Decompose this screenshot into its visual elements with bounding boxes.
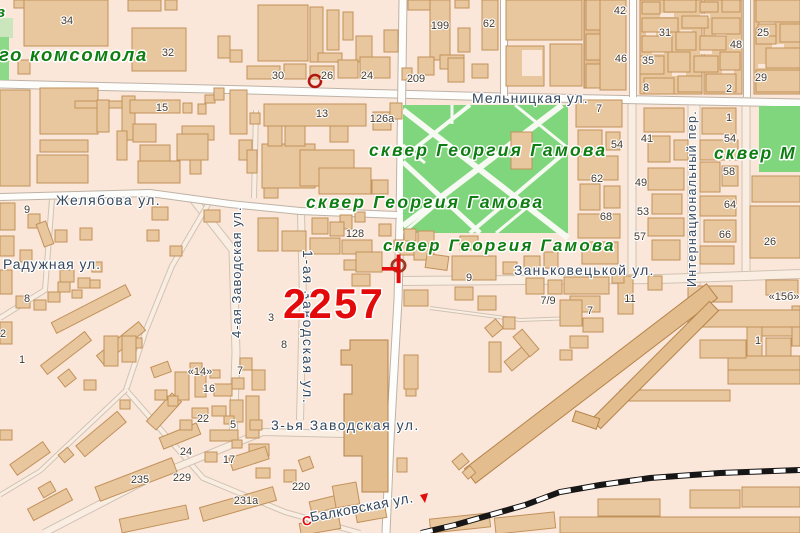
svg-text:8: 8 — [281, 339, 287, 351]
svg-text:1-ая Заводская ул.: 1-ая Заводская ул. — [300, 250, 316, 405]
svg-text:41: 41 — [641, 133, 653, 145]
svg-text:30: 30 — [272, 70, 284, 82]
svg-text:8: 8 — [643, 82, 649, 94]
svg-text:9: 9 — [466, 272, 472, 284]
svg-text:31: 31 — [659, 27, 671, 39]
svg-text:7: 7 — [587, 305, 593, 317]
svg-text:3: 3 — [268, 312, 274, 324]
svg-text:1: 1 — [755, 335, 761, 347]
svg-text:42: 42 — [614, 5, 626, 17]
svg-text:199: 199 — [431, 20, 449, 32]
svg-text:сквер Георгия Гамова: сквер Георгия Гамова — [306, 192, 544, 212]
svg-text:49: 49 — [635, 177, 647, 189]
svg-text:62: 62 — [591, 173, 603, 185]
svg-text:2: 2 — [726, 83, 732, 95]
svg-text:«15б»: «15б» — [769, 291, 800, 303]
svg-text:53: 53 — [637, 206, 649, 218]
svg-text:8: 8 — [24, 293, 30, 305]
svg-text:2: 2 — [0, 328, 6, 340]
svg-text:48: 48 — [730, 39, 742, 51]
svg-text:220: 220 — [292, 481, 310, 493]
svg-text:Желябова ул.: Желябова ул. — [56, 192, 161, 208]
svg-text:35: 35 — [642, 55, 654, 67]
svg-text:25: 25 — [757, 27, 769, 39]
svg-text:54: 54 — [611, 139, 623, 151]
svg-text:го комсомола: го комсомола — [0, 44, 148, 65]
svg-text:16: 16 — [203, 383, 215, 395]
svg-text:Интернациональный пер.: Интернациональный пер. — [685, 110, 699, 287]
svg-text:17: 17 — [223, 454, 235, 466]
svg-text:1: 1 — [726, 112, 732, 124]
svg-text:126а: 126а — [370, 113, 395, 125]
svg-text:7: 7 — [596, 103, 602, 115]
svg-text:64: 64 — [724, 199, 736, 211]
svg-text:66: 66 — [719, 229, 731, 241]
svg-text:сквер Георгия Гамова: сквер Георгия Гамова — [383, 236, 616, 255]
svg-text:209: 209 — [407, 73, 425, 85]
svg-text:13: 13 — [316, 108, 328, 120]
svg-text:128: 128 — [346, 228, 364, 240]
svg-text:Радужная ул.: Радужная ул. — [3, 256, 101, 272]
svg-text:58: 58 — [723, 166, 735, 178]
svg-text:231а: 231а — [234, 495, 259, 507]
svg-text:1: 1 — [19, 354, 25, 366]
svg-text:24: 24 — [180, 446, 192, 458]
svg-text:11: 11 — [624, 293, 635, 305]
svg-text:26: 26 — [764, 236, 776, 248]
svg-text:«14»: «14» — [188, 366, 212, 378]
svg-text:54: 54 — [724, 133, 736, 145]
svg-text:32: 32 — [162, 47, 174, 59]
svg-text:68: 68 — [600, 211, 612, 223]
svg-text:9: 9 — [24, 204, 30, 216]
svg-text:Заньковецькой ул.: Заньковецькой ул. — [514, 262, 655, 278]
svg-text:сквер М: сквер М — [714, 143, 797, 163]
svg-text:сквер Георгия Гамова: сквер Георгия Гамова — [369, 140, 607, 160]
svg-text:57: 57 — [634, 231, 646, 243]
svg-text:3-ья Заводская ул.: 3-ья Заводская ул. — [271, 417, 420, 433]
svg-text:5: 5 — [230, 419, 236, 431]
svg-text:Мельницкая ул.: Мельницкая ул. — [472, 90, 589, 106]
svg-text:7/9: 7/9 — [540, 295, 555, 307]
svg-text:22: 22 — [197, 413, 209, 425]
svg-text:235: 235 — [131, 474, 149, 486]
svg-text:4-ая Заводская ул.: 4-ая Заводская ул. — [229, 206, 244, 338]
svg-text:26: 26 — [321, 70, 333, 82]
svg-text:15: 15 — [156, 102, 168, 114]
svg-text:46: 46 — [615, 53, 627, 65]
svg-text:29: 29 — [755, 72, 767, 84]
svg-text:в: в — [0, 4, 5, 21]
svg-text:62: 62 — [483, 18, 495, 30]
svg-text:2257: 2257 — [283, 280, 385, 327]
svg-text:24: 24 — [361, 70, 373, 82]
svg-text:34: 34 — [61, 15, 73, 27]
svg-text:229: 229 — [173, 472, 191, 484]
svg-text:7: 7 — [237, 365, 243, 377]
